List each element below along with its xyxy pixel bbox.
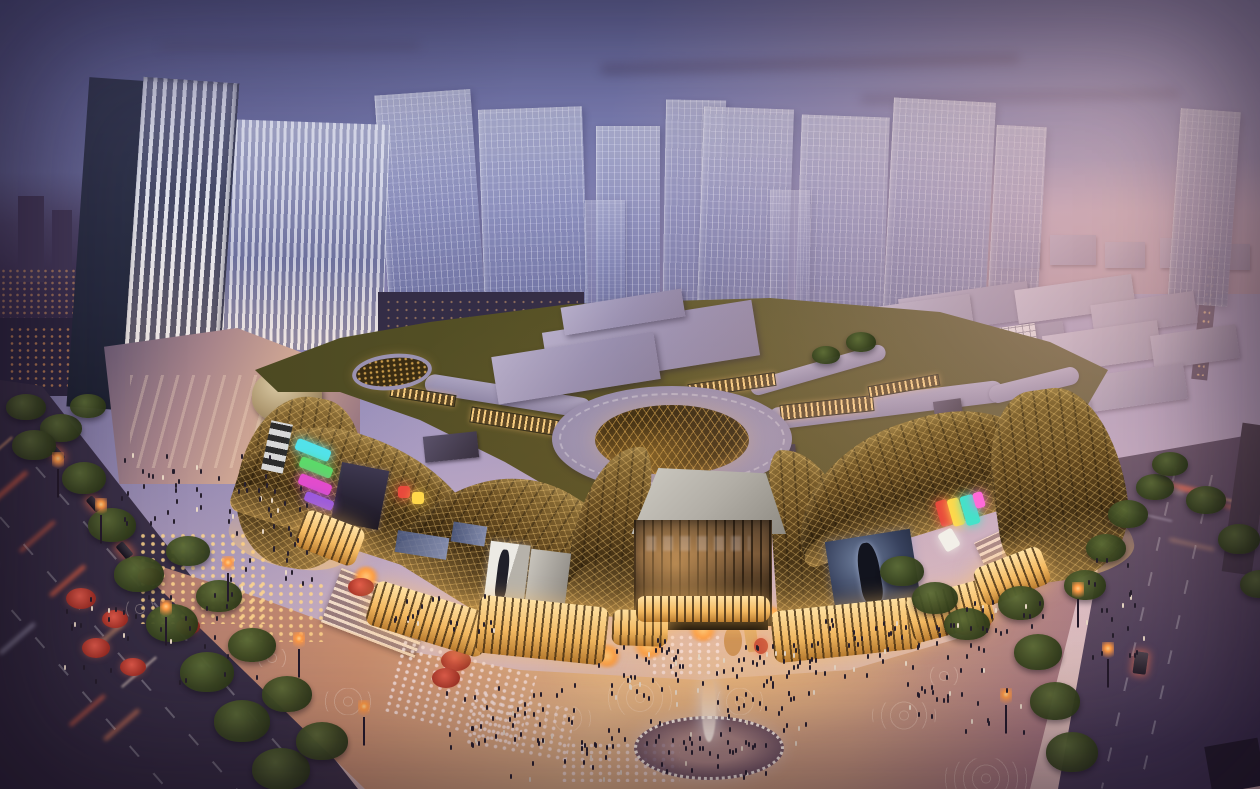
entrance-base <box>638 608 768 630</box>
rooftop-slab <box>1150 324 1240 370</box>
sculpture-accent <box>754 638 768 654</box>
main-entrance <box>618 468 786 630</box>
fountain-jet <box>702 680 716 742</box>
dark-corner-block <box>1204 738 1260 789</box>
architectural-rendering: Aerial dusk architectural rendering of a… <box>0 0 1260 789</box>
storefront-sign-blur <box>646 536 750 551</box>
fountain <box>634 716 784 780</box>
sculpture-figure <box>724 626 742 656</box>
